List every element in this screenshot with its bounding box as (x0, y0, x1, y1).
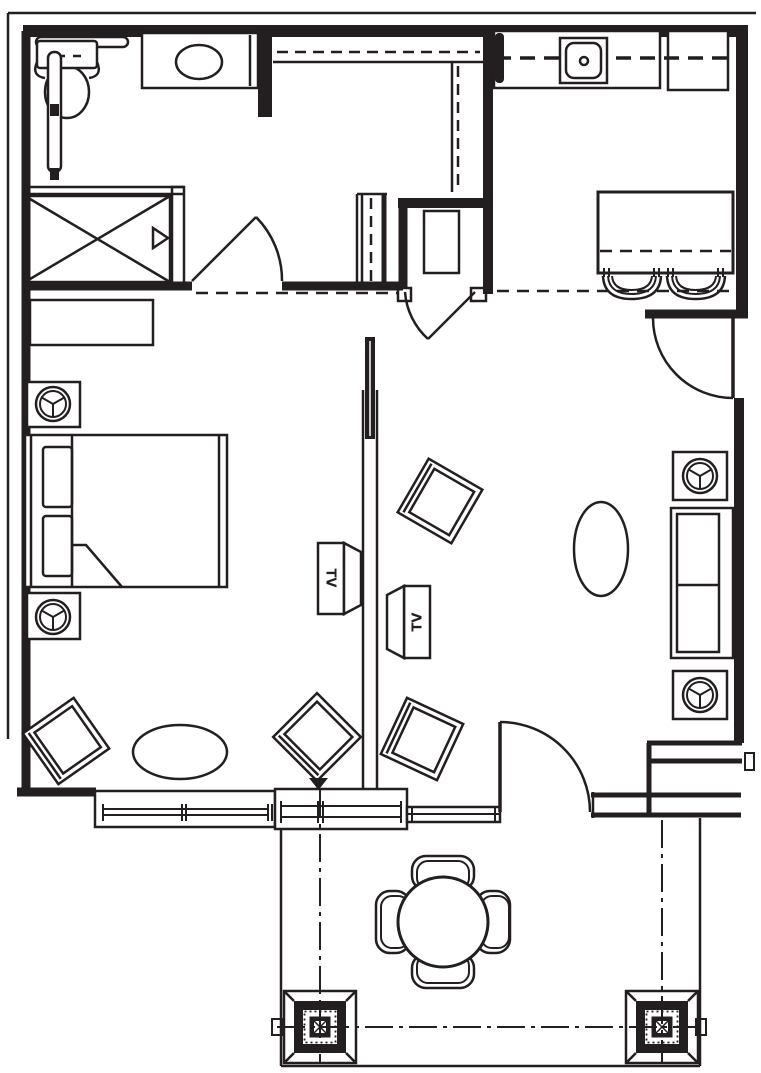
walls (8, 13, 756, 792)
end-table-with-lamp (673, 671, 727, 719)
nightstand-with-lamp (27, 593, 80, 639)
sofa-outline (671, 508, 733, 658)
sink-drain-icon (580, 57, 588, 65)
bedroom (23, 300, 227, 784)
oval-coffee-table-icon (574, 502, 628, 596)
end-table-with-lamp (673, 452, 727, 500)
shower-wall-right (172, 187, 184, 283)
wall-marker-block (745, 753, 754, 770)
stepped-wall-corner (591, 743, 754, 818)
grab-bar-bracket (50, 104, 59, 116)
round-dining-table-icon (398, 877, 488, 967)
bed-icon (25, 435, 227, 587)
kitchen-door-swing-arc (653, 318, 733, 398)
shower-door-handle-icon (153, 228, 168, 248)
bathroom-door-swing-arc (256, 217, 282, 281)
armchair-icon (273, 693, 361, 781)
tv-cabinet-bedroom: TV (318, 543, 361, 614)
armchair-icon (398, 459, 483, 544)
patio (272, 790, 706, 1066)
patio-door (500, 722, 590, 812)
tv-cabinet-living: TV (387, 586, 430, 658)
armchair-icon (381, 698, 463, 780)
entry-door-swing-arc (405, 292, 428, 339)
entry-mat-icon (424, 211, 459, 273)
tv-label: TV (323, 569, 338, 588)
living-room (273, 452, 733, 781)
bathroom (23, 33, 282, 283)
window-band-a (95, 791, 275, 827)
patio-door-swing-arc (500, 722, 590, 812)
kitchen (494, 31, 733, 398)
sofa-icon (671, 508, 733, 658)
ottoman-icon (133, 725, 227, 779)
partition-wall-lines (363, 390, 377, 789)
refrigerator-icon (668, 31, 728, 90)
shower-x-mark (25, 196, 170, 282)
grab-bar-bracket (50, 168, 59, 180)
toilet-tank-icon (37, 41, 97, 68)
floor-plan-drawing: TV TV (0, 0, 761, 1073)
window-band-b (275, 789, 407, 829)
tv-screen (387, 586, 404, 658)
pillow-icon (43, 516, 72, 576)
entry-door-leaf (428, 292, 475, 339)
bathroom-door-leaf (192, 217, 256, 281)
island-counter-icon (598, 192, 733, 273)
dresser-icon (30, 300, 153, 345)
sink-basin-icon (176, 45, 222, 79)
entry (405, 211, 475, 339)
tv-screen (344, 543, 361, 614)
tv-label: TV (411, 613, 426, 632)
nightstand-with-lamp (27, 382, 80, 427)
floor-plan-page: TV TV (0, 0, 761, 1073)
window-frame (275, 789, 407, 829)
pillow-icon (43, 447, 72, 507)
closets (273, 52, 483, 286)
armchair-icon (23, 698, 109, 784)
low-sill-window (407, 807, 500, 822)
